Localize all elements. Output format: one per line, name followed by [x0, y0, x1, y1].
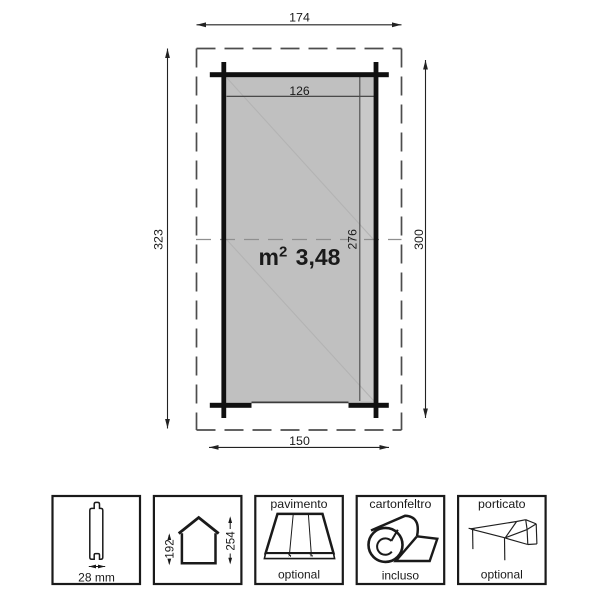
- svg-text:150: 150: [289, 434, 310, 448]
- svg-text:174: 174: [289, 11, 310, 25]
- svg-text:pavimento: pavimento: [270, 497, 327, 511]
- svg-text:254: 254: [225, 531, 237, 551]
- svg-text:126: 126: [289, 84, 310, 98]
- svg-text:cartonfeltro: cartonfeltro: [369, 497, 431, 511]
- svg-text:276: 276: [346, 229, 360, 250]
- svg-text:optional: optional: [481, 568, 523, 582]
- svg-text:192: 192: [164, 539, 176, 558]
- svg-text:optional: optional: [278, 568, 320, 582]
- svg-text:28 mm: 28 mm: [78, 571, 115, 585]
- svg-text:300: 300: [412, 229, 426, 250]
- svg-text:323: 323: [152, 229, 166, 250]
- svg-text:porticato: porticato: [478, 497, 526, 511]
- svg-text:incluso: incluso: [382, 569, 420, 583]
- svg-text:m2 3,48: m2 3,48: [259, 244, 341, 271]
